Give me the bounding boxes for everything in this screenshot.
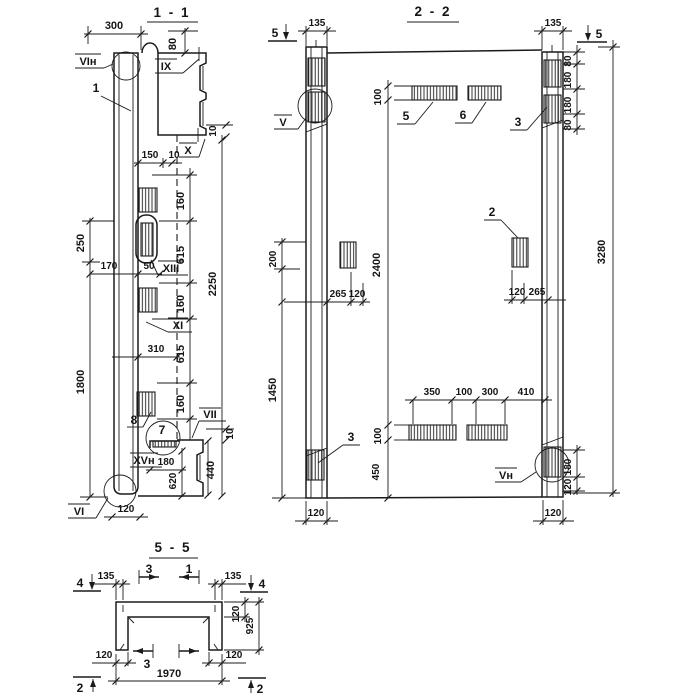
dim-80: 80 <box>167 28 198 57</box>
svg-text:V: V <box>279 117 287 129</box>
web-bottom-edge <box>327 497 542 498</box>
svg-text:X: X <box>184 145 192 157</box>
embed-plate <box>512 238 528 267</box>
dim-150-10: 150 10 <box>134 150 182 184</box>
rebar-bar-6 <box>468 86 501 100</box>
svg-text:350: 350 <box>424 387 441 398</box>
dim-chain-right: 160 615 160 615 160 <box>152 168 197 440</box>
svg-text:2: 2 <box>257 682 264 696</box>
svg-text:450: 450 <box>371 463 382 480</box>
dim-chain-right-top: 80 180 180 80 <box>563 45 585 135</box>
view-5-5-title: 5 - 5 <box>154 540 191 555</box>
svg-text:100: 100 <box>373 427 384 444</box>
svg-text:265: 265 <box>330 289 347 300</box>
section-marker-3-bottom: 3 <box>133 644 199 671</box>
dim-chain-middle: 100 2400 100 450 <box>371 80 412 502</box>
svg-text:80: 80 <box>167 38 179 50</box>
svg-text:80: 80 <box>563 55 574 67</box>
embed-plate <box>139 288 157 312</box>
svg-text:620: 620 <box>168 472 179 489</box>
svg-text:135: 135 <box>545 18 562 29</box>
rebar-bar-5 <box>412 86 457 100</box>
embed-plate <box>340 242 356 268</box>
svg-text:180: 180 <box>563 96 574 113</box>
svg-text:3: 3 <box>348 430 355 444</box>
svg-text:10: 10 <box>208 125 219 137</box>
dim-120-265-right: 120 265 <box>504 270 566 304</box>
svg-text:XI: XI <box>173 320 183 332</box>
svg-text:440: 440 <box>205 461 217 479</box>
rebar-bar <box>467 425 507 440</box>
dim-3280: 3280 <box>566 40 620 497</box>
svg-text:2400: 2400 <box>371 253 383 277</box>
svg-text:2: 2 <box>489 205 496 219</box>
view-2-2-title: 2 - 2 <box>414 4 451 19</box>
section-marker-1-top: 1 <box>179 562 199 584</box>
svg-text:5: 5 <box>596 27 603 41</box>
svg-text:3: 3 <box>515 115 522 129</box>
part-label-3-bottom: 3 <box>318 430 360 463</box>
embed-plate <box>139 188 157 212</box>
dim-135-left-55: 135 <box>94 571 130 600</box>
svg-text:120: 120 <box>308 508 325 519</box>
dim-120-bottom: 120 <box>104 504 148 521</box>
detail-label-v: V <box>274 115 306 129</box>
svg-text:120: 120 <box>545 508 562 519</box>
part-label-6: 6 <box>455 102 486 123</box>
detail-circle-vi <box>104 475 136 507</box>
part-label-7: 7 <box>159 423 166 437</box>
svg-text:3: 3 <box>146 562 153 576</box>
technical-drawing: 1 - 1 300 80 <box>0 0 700 700</box>
svg-text:1450: 1450 <box>267 378 279 402</box>
svg-text:410: 410 <box>518 387 535 398</box>
dim-135-right: 135 <box>534 18 572 50</box>
svg-text:120: 120 <box>226 650 243 661</box>
svg-text:10: 10 <box>168 150 180 161</box>
part-label-1: 1 <box>93 81 131 111</box>
view-1-1: 1 - 1 300 80 <box>68 5 236 521</box>
dim-170-50: 170 50 <box>87 261 164 278</box>
svg-text:160: 160 <box>175 192 187 210</box>
svg-text:VIн: VIн <box>79 56 96 68</box>
svg-text:135: 135 <box>98 571 115 582</box>
svg-text:250: 250 <box>75 234 87 252</box>
svg-text:4: 4 <box>77 576 84 590</box>
web-top-edge <box>327 50 542 53</box>
svg-text:135: 135 <box>225 571 242 582</box>
section-marker-5-left: 5 <box>268 24 297 41</box>
svg-text:5: 5 <box>272 26 279 40</box>
svg-text:XIII: XIII <box>163 263 180 275</box>
dim-135-right-55: 135 <box>208 571 246 600</box>
dim-chain-left: 250 1800 <box>75 218 114 501</box>
svg-text:1800: 1800 <box>75 370 87 394</box>
svg-text:1: 1 <box>93 81 100 95</box>
view-2-2: 2 - 2 5 5 135 135 <box>267 4 620 525</box>
detail-circle-vin <box>112 52 140 80</box>
svg-text:Vн: Vн <box>499 470 513 482</box>
svg-text:300: 300 <box>105 20 123 32</box>
detail-label-vi: VI <box>68 498 108 518</box>
channel-section-outline <box>116 602 222 650</box>
oval-slot <box>136 215 157 263</box>
dim-310: 310 <box>112 344 181 361</box>
detail-label-vn: Vн <box>495 468 536 482</box>
svg-text:1: 1 <box>186 562 193 576</box>
svg-text:3280: 3280 <box>596 240 608 264</box>
svg-text:310: 310 <box>148 344 165 355</box>
svg-text:160: 160 <box>175 295 187 313</box>
svg-text:135: 135 <box>309 18 326 29</box>
section-marker-4-right: 4 <box>240 575 268 592</box>
section-marker-5-right: 5 <box>577 25 607 42</box>
svg-text:10: 10 <box>225 428 236 440</box>
svg-text:120: 120 <box>96 650 113 661</box>
svg-text:180: 180 <box>158 457 175 468</box>
svg-text:615: 615 <box>175 345 187 363</box>
dim-1970: 1970 <box>108 654 230 685</box>
section-marker-2-right: 2 <box>238 678 266 696</box>
weld-plate-detail <box>150 441 179 448</box>
dim-120-bottom-left: 120 <box>295 501 338 525</box>
svg-text:200: 200 <box>268 250 279 267</box>
view-5-5: 5 - 5 4 4 135 135 <box>73 540 268 696</box>
section-marker-2-left: 2 <box>73 677 101 695</box>
svg-text:6: 6 <box>460 108 467 122</box>
part-label-2: 2 <box>484 205 518 238</box>
svg-text:150: 150 <box>142 150 159 161</box>
detail-label-vii: VII <box>192 408 226 438</box>
svg-text:925: 925 <box>245 617 256 634</box>
svg-text:8: 8 <box>131 413 138 427</box>
svg-text:2250: 2250 <box>207 272 219 296</box>
right-leg-section <box>542 45 563 497</box>
svg-text:120: 120 <box>509 287 526 298</box>
svg-text:XVн: XVн <box>133 455 154 467</box>
embed-plate <box>137 392 155 416</box>
svg-text:VI: VI <box>74 506 84 518</box>
svg-text:50: 50 <box>143 261 155 272</box>
dim-2250: 10 2250 10 <box>206 122 236 500</box>
left-leg-section <box>306 40 327 498</box>
svg-text:100: 100 <box>373 88 384 105</box>
dim-350-100-300-410: 350 100 300 410 <box>405 387 552 424</box>
dim-300: 300 <box>84 20 148 50</box>
dim-120-br-55: 120 <box>202 650 246 667</box>
svg-text:IX: IX <box>161 61 172 73</box>
svg-text:265: 265 <box>529 287 546 298</box>
part-label-5: 5 <box>397 102 433 124</box>
svg-text:5: 5 <box>403 109 410 123</box>
svg-text:170: 170 <box>101 261 118 272</box>
drawing-sheet: 1 - 1 300 80 <box>0 0 700 700</box>
svg-text:80: 80 <box>563 119 574 131</box>
rebar-bar <box>409 425 456 440</box>
svg-text:180: 180 <box>563 71 574 88</box>
dim-120-bottom-right: 120 <box>533 500 574 525</box>
svg-text:1970: 1970 <box>157 668 181 680</box>
detail-label-x: X <box>179 128 205 157</box>
svg-text:2: 2 <box>77 681 84 695</box>
svg-text:160: 160 <box>175 395 187 413</box>
svg-text:120: 120 <box>349 289 366 300</box>
detail-label-vin: VIн <box>75 54 113 68</box>
svg-text:4: 4 <box>259 577 266 591</box>
dim-chain-right-bottom: 180 120 <box>563 445 585 495</box>
lifting-loop <box>142 43 158 53</box>
dim-120-bl-55: 120 <box>92 650 136 667</box>
svg-text:120: 120 <box>118 504 135 515</box>
section-marker-3-top: 3 <box>139 562 159 584</box>
dim-chain-2-2-left: 200 1450 <box>267 238 306 502</box>
dim-135-left: 135 <box>298 18 336 46</box>
dim-440: 440 <box>205 438 218 499</box>
dim-620: 620 <box>168 448 186 500</box>
svg-text:VII: VII <box>203 409 216 421</box>
detail-label-xi: XI <box>146 318 192 332</box>
svg-text:180: 180 <box>563 458 574 475</box>
svg-text:300: 300 <box>482 387 499 398</box>
svg-text:120: 120 <box>231 605 242 622</box>
svg-text:3: 3 <box>144 657 151 671</box>
dim-925: 925 <box>224 597 264 655</box>
view-1-1-title: 1 - 1 <box>153 5 190 20</box>
svg-text:100: 100 <box>456 387 473 398</box>
